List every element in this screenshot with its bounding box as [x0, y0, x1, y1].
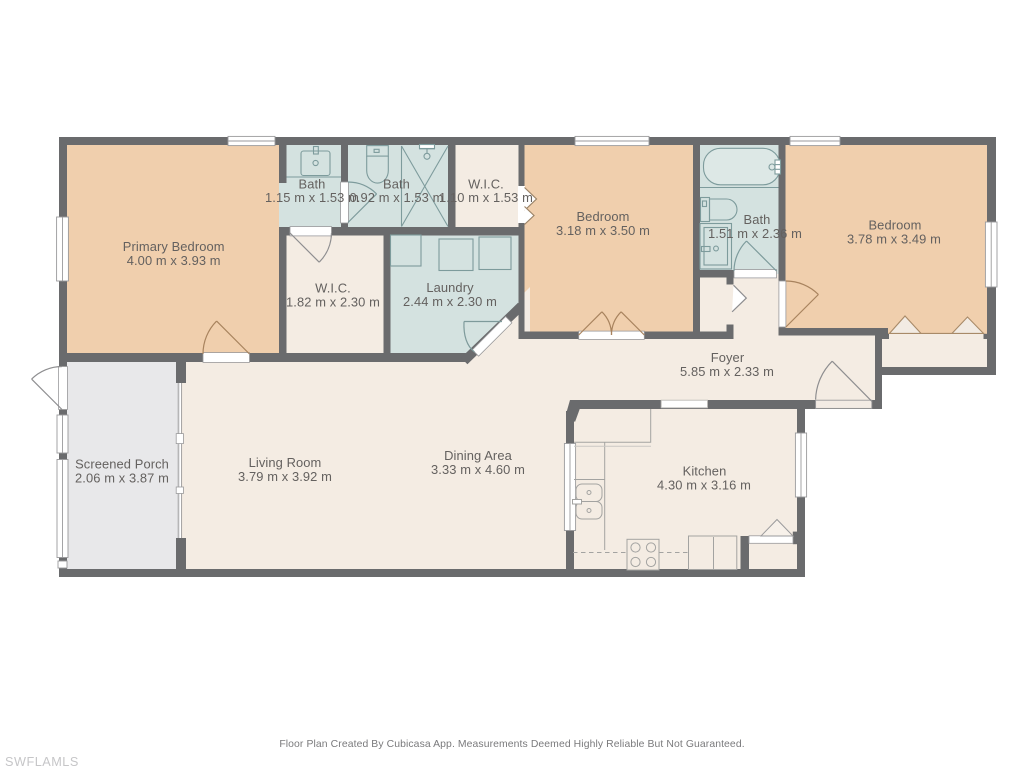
svg-text:SWFLAMLS: SWFLAMLS [5, 755, 79, 768]
svg-text:Foyer: Foyer [711, 350, 745, 365]
svg-text:1.15 m x 1.53 m: 1.15 m x 1.53 m [265, 190, 359, 205]
svg-text:5.85 m x 2.33 m: 5.85 m x 2.33 m [680, 364, 774, 379]
svg-text:Bedroom: Bedroom [868, 218, 921, 233]
svg-text:Bath: Bath [744, 212, 771, 227]
svg-text:Living Room: Living Room [249, 455, 322, 470]
svg-text:0.92 m x 1.53 m: 0.92 m x 1.53 m [350, 190, 444, 205]
svg-text:Primary Bedroom: Primary Bedroom [123, 239, 225, 254]
svg-text:Dining Area: Dining Area [444, 448, 512, 463]
svg-text:Laundry: Laundry [426, 280, 474, 295]
svg-text:W.I.C.: W.I.C. [315, 280, 351, 295]
svg-text:1.82 m x 2.30 m: 1.82 m x 2.30 m [286, 294, 380, 309]
svg-text:3.79 m x 3.92 m: 3.79 m x 3.92 m [238, 469, 332, 484]
svg-text:4.00 m x 3.93 m: 4.00 m x 3.93 m [127, 253, 221, 268]
svg-text:4.30 m x 3.16 m: 4.30 m x 3.16 m [657, 477, 751, 492]
svg-text:Floor Plan Created By Cubicasa: Floor Plan Created By Cubicasa App. Meas… [279, 739, 744, 750]
svg-text:3.33 m x 4.60 m: 3.33 m x 4.60 m [431, 462, 525, 477]
svg-text:2.44 m x 2.30 m: 2.44 m x 2.30 m [403, 294, 497, 309]
svg-text:Kitchen: Kitchen [683, 463, 727, 478]
svg-text:1.51 m x 2.36 m: 1.51 m x 2.36 m [708, 226, 802, 241]
svg-text:3.78 m x 3.49 m: 3.78 m x 3.49 m [847, 232, 941, 247]
svg-text:Bedroom: Bedroom [576, 209, 629, 224]
svg-text:Screened Porch: Screened Porch [75, 456, 169, 471]
svg-text:3.18 m x 3.50 m: 3.18 m x 3.50 m [556, 223, 650, 238]
svg-text:2.06 m x 3.87 m: 2.06 m x 3.87 m [75, 470, 169, 485]
svg-text:1.10 m x 1.53 m: 1.10 m x 1.53 m [439, 190, 533, 205]
